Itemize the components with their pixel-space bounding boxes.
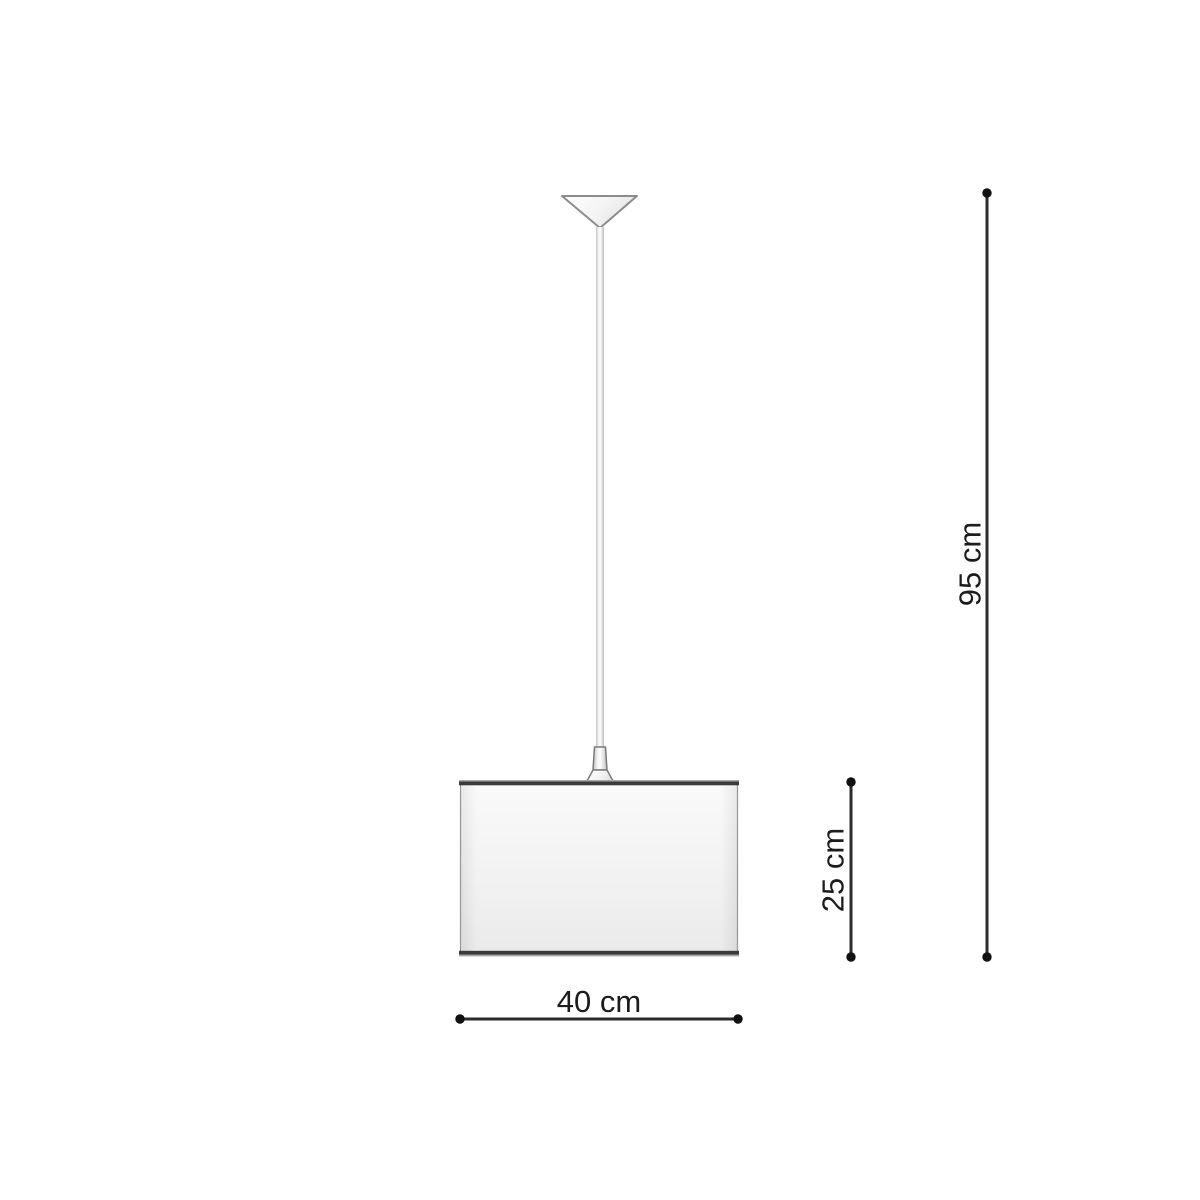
dimension-dot-25cm-top (846, 777, 855, 786)
dimension-label-shade-width: 40 cm (460, 986, 738, 1017)
dimension-dot-25cm-bottom (846, 952, 855, 961)
dimension-label-overall-height: 95 cm (955, 522, 986, 606)
lamp-shade-top-rim-highlight (459, 780, 739, 782)
pendant-cable (596, 227, 604, 747)
ceiling-canopy (562, 196, 637, 228)
lamp-socket (593, 747, 607, 770)
lamp-shade-edge-shading (461, 783, 738, 953)
lamp-shade-top-trim (459, 782, 739, 786)
lamp-shade-bottom-rim-highlight (459, 955, 739, 957)
dimension-dot-95cm-bottom (982, 952, 991, 961)
dimension-label-shade-height: 25 cm (818, 828, 849, 912)
lamp-drawing (0, 0, 1200, 1200)
lamp-shade-bottom-trim (459, 951, 739, 955)
dimension-dot-95cm-top (982, 188, 991, 197)
pendant-lamp-dimension-diagram: 95 cm 25 cm 40 cm (0, 0, 1200, 1200)
